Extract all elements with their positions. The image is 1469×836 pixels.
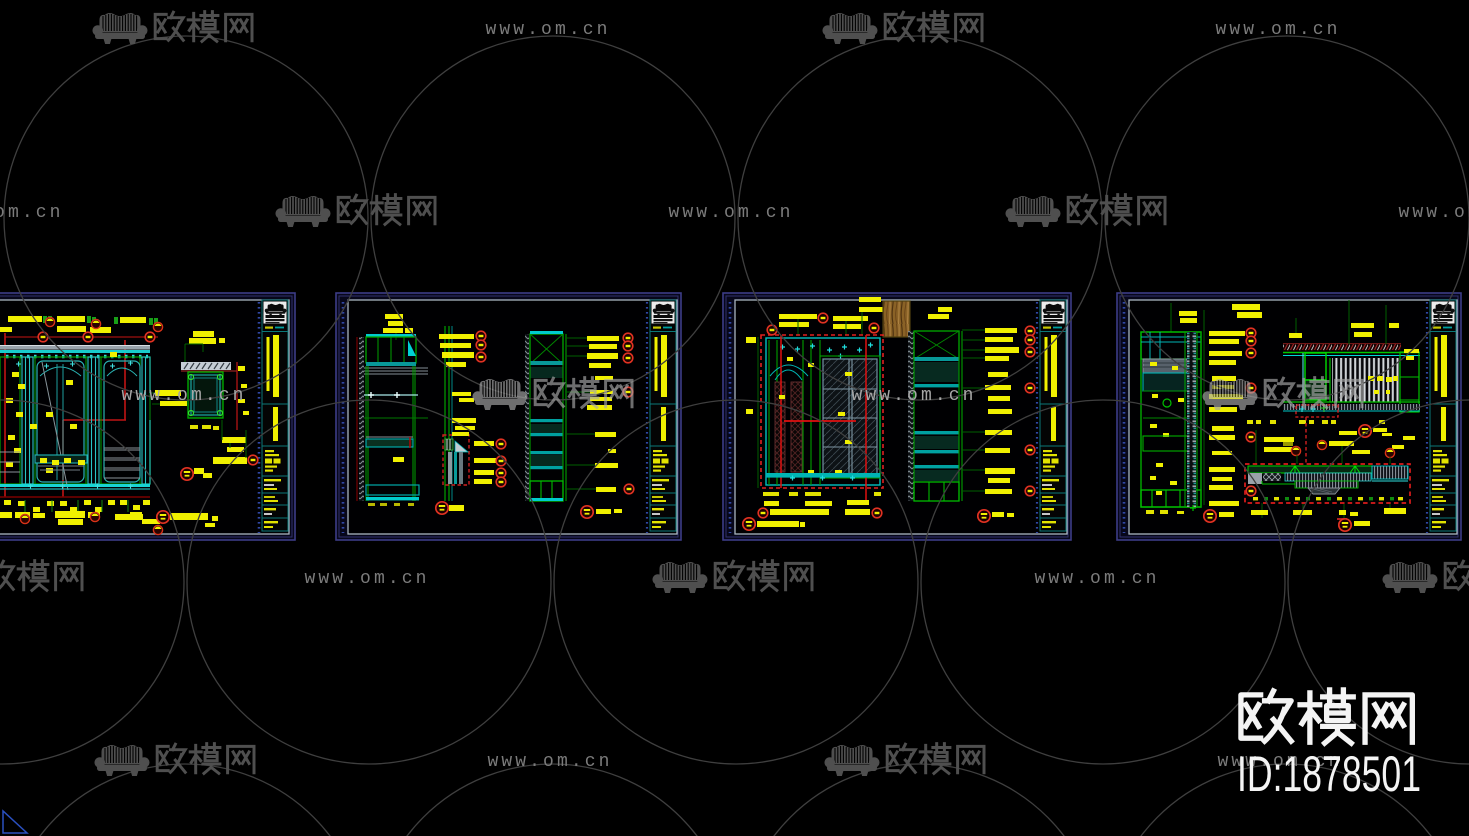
svg-text:www.om.cn: www.om.cn: [0, 203, 64, 223]
svg-text:www.om.cn: www.om.cn: [487, 752, 612, 772]
svg-text:www.om.cn: www.om.cn: [304, 569, 429, 589]
svg-text:www.om.cn: www.om.cn: [1034, 569, 1159, 589]
svg-text:www.om.cn: www.om.cn: [851, 386, 976, 406]
svg-text:www.om.cn: www.om.cn: [668, 203, 793, 223]
svg-text:www.om.cn: www.om.cn: [485, 20, 610, 40]
svg-text:ID:1878501: ID:1878501: [1237, 746, 1421, 802]
svg-text:www.om.cn: www.om.cn: [121, 386, 246, 406]
svg-text:www.om.cn: www.om.cn: [1398, 203, 1469, 223]
svg-text:www.om.cn: www.om.cn: [1215, 20, 1340, 40]
